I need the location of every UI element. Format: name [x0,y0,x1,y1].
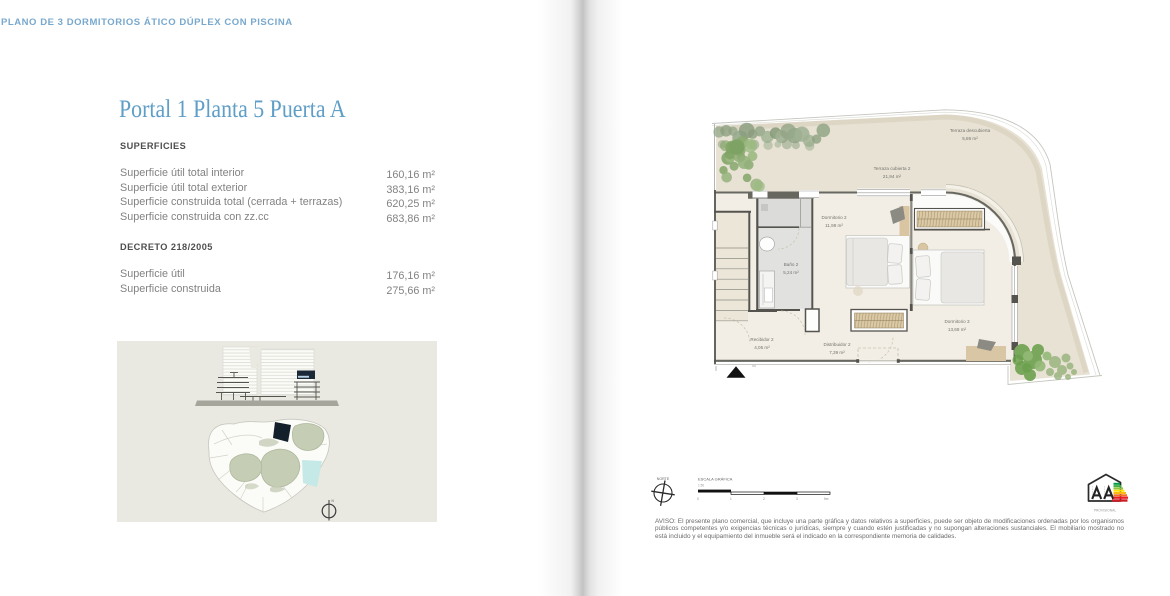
svg-text:5,24 m²: 5,24 m² [783,270,799,275]
svg-text:Distribuidor 2: Distribuidor 2 [823,342,851,347]
svg-text:0: 0 [697,497,699,501]
svg-text:3: 3 [796,497,798,501]
svg-text:11,98 m²: 11,98 m² [825,223,843,228]
svg-text:PROVISIONAL: PROVISIONAL [1094,509,1117,513]
svg-text:21,94 m²: 21,94 m² [883,174,902,179]
svg-text:1:50: 1:50 [698,484,704,488]
svg-text:5,86 m²: 5,86 m² [962,136,978,141]
svg-text:Dormitorio 2: Dormitorio 2 [821,215,846,220]
svg-text:Recibidor 2: Recibidor 2 [750,337,774,342]
svg-text:7,39 m²: 7,39 m² [829,350,845,355]
svg-text:Baño 2: Baño 2 [784,262,799,267]
svg-text:2: 2 [763,497,765,501]
svg-text:13,68 m²: 13,68 m² [948,327,967,332]
svg-text:ESCALA GRÁFICA: ESCALA GRÁFICA [698,477,733,482]
svg-text:Terraza cubierta 2: Terraza cubierta 2 [874,166,911,171]
svg-text:Dormitorio 3: Dormitorio 3 [944,319,969,324]
svg-text:4,05 m²: 4,05 m² [754,345,770,350]
svg-text:1: 1 [730,497,732,501]
svg-text:NORTE: NORTE [657,477,670,481]
svg-text:5m: 5m [824,497,829,501]
svg-text:Terraza descubierta: Terraza descubierta [950,128,991,133]
